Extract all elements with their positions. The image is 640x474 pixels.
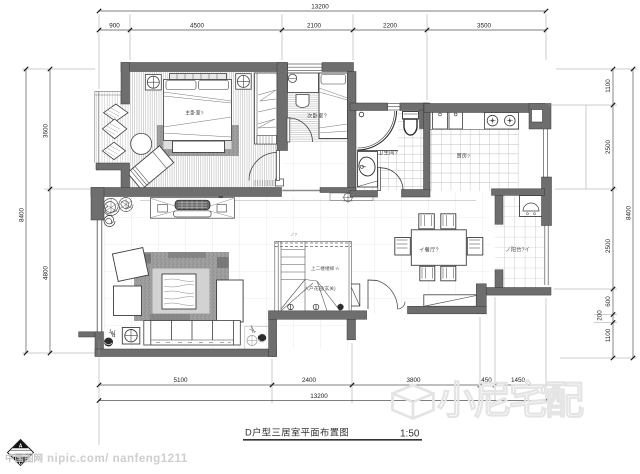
svg-text:入户花园(玄关): 入户花园(玄关) [304, 285, 336, 292]
svg-text:2500: 2500 [605, 239, 612, 254]
svg-text:2400: 2400 [302, 377, 317, 384]
svg-text:5100: 5100 [173, 377, 188, 384]
svg-text:13200: 13200 [310, 393, 328, 400]
svg-text:厨房?: 厨房? [457, 153, 470, 160]
svg-text:小尼宅配: 小尼宅配 [437, 379, 584, 423]
svg-text:3500: 3500 [477, 23, 492, 30]
svg-text:ノ阳台?イ: ノ阳台?イ [505, 246, 530, 254]
svg-text:nipic.com/ nanfeng1211: nipic.com/ nanfeng1211 [47, 453, 188, 465]
svg-text:600: 600 [605, 296, 612, 307]
svg-text:4800: 4800 [43, 266, 50, 281]
svg-text:1100: 1100 [605, 328, 612, 342]
svg-text:上二楼楼梯·A: 上二楼楼梯·A [311, 265, 340, 272]
svg-text:中国图网: 中国图网 [5, 453, 43, 465]
svg-text:2500: 2500 [605, 140, 612, 155]
svg-text:200: 200 [597, 310, 604, 321]
svg-text:8400: 8400 [626, 206, 633, 221]
svg-text:2200: 2200 [383, 23, 398, 30]
svg-text:D户型三居室平面布置图: D户型三居室平面布置图 [245, 427, 349, 438]
svg-text:8400: 8400 [19, 208, 26, 223]
svg-text:ノ?: ノ? [290, 232, 297, 237]
svg-text:1:50: 1:50 [400, 429, 420, 440]
svg-text:4500: 4500 [190, 23, 205, 30]
svg-text:1100: 1100 [605, 79, 612, 93]
svg-text:イ餐厅?: イ餐厅? [419, 246, 439, 254]
svg-text:13200: 13200 [311, 4, 329, 11]
svg-text:A: A [19, 444, 23, 450]
svg-text:主卧室?: 主卧室? [185, 110, 204, 117]
svg-text:卫生间?: 卫生间? [378, 149, 398, 157]
svg-text:900: 900 [109, 23, 120, 30]
svg-text:次卧室?: 次卧室? [307, 112, 327, 120]
svg-text:3800: 3800 [406, 377, 421, 384]
svg-text:3600: 3600 [43, 124, 50, 139]
svg-text:2100: 2100 [307, 23, 322, 30]
